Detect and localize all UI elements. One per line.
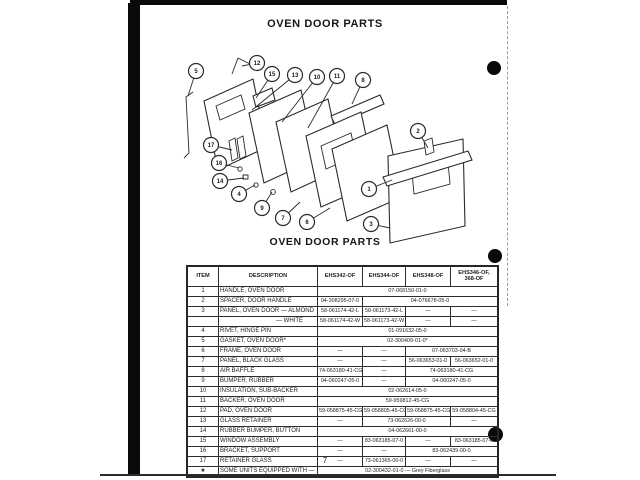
column-header: DESCRIPTION bbox=[219, 266, 318, 287]
part-number-cell: 73-062626-00-0 bbox=[363, 417, 451, 427]
part-number-cell: — bbox=[406, 437, 451, 447]
part-number-cell: 74-063180-41-CG bbox=[318, 367, 363, 377]
item-number-cell: 12 bbox=[187, 407, 219, 417]
callout-number: 15 bbox=[269, 72, 276, 78]
item-number-cell: 6 bbox=[187, 347, 219, 357]
table-row: 12PAD, OVEN DOOR59-058875-45-CG59-058805… bbox=[187, 407, 498, 417]
description-cell: PANEL, OVEN DOOR — ALMOND bbox=[219, 307, 318, 317]
part-number-cell: — bbox=[318, 437, 363, 447]
item-number-cell: 3 bbox=[187, 307, 219, 317]
part-number-cell: — bbox=[363, 347, 406, 357]
item-number-cell: 2 bbox=[187, 297, 219, 307]
part-number-cell: 58-061174-42-W bbox=[318, 317, 363, 327]
part-number-cell: — bbox=[318, 347, 363, 357]
item-number-cell: 10 bbox=[187, 387, 219, 397]
description-cell: RIVET, HINGE PIN bbox=[219, 327, 318, 337]
part-number-cell: — bbox=[318, 417, 363, 427]
callout-number: 16 bbox=[216, 161, 223, 167]
part-number-cell: 02-300432-01-0 — Grey Fiberglass bbox=[318, 467, 499, 478]
description-cell: HANDLE, OVEN DOOR bbox=[219, 287, 318, 297]
table-row: 15WINDOW ASSEMBLY—83-063185-07-0—83-0631… bbox=[187, 437, 498, 447]
item-number-cell: 14 bbox=[187, 427, 219, 437]
description-cell: FRAME, OVEN DOOR bbox=[219, 347, 318, 357]
part-number-cell: 83-063185-07-0 bbox=[451, 437, 499, 447]
table-row: 9BUMPER, RUBBER04-060247-05-0—04-060247-… bbox=[187, 377, 498, 387]
part-number-cell: 83-063185-07-0 bbox=[363, 437, 406, 447]
clip-shape bbox=[424, 138, 434, 155]
part-number-cell: 59-058875-45-CG bbox=[318, 407, 363, 417]
parts-table: ITEMDESCRIPTIONEHS342-OFEHS344-OFEHS348-… bbox=[186, 265, 499, 478]
table-row: 8AIR BAFFLE74-063180-41-CG—74-063180-41-… bbox=[187, 367, 498, 377]
item-number-cell: 7 bbox=[187, 357, 219, 367]
item-number-cell: ★ bbox=[187, 467, 219, 478]
description-cell: SOME UNITS EQUIPPED WITH — bbox=[219, 467, 318, 478]
description-cell: PAD, OVEN DOOR bbox=[219, 407, 318, 417]
callout-number: 14 bbox=[217, 179, 224, 185]
description-cell: BRACKET, SUPPORT bbox=[219, 447, 318, 457]
table-row: 4RIVET, HINGE PIN01-091632-05-0 bbox=[187, 327, 498, 337]
part-number-cell: 59-058804-45-CG bbox=[451, 407, 499, 417]
description-cell: RUBBER BUMPER, BUTTON bbox=[219, 427, 318, 437]
callout-number: 17 bbox=[208, 143, 215, 149]
part-number-cell: — bbox=[451, 417, 499, 427]
bracket-hook-shape bbox=[232, 58, 250, 74]
part-number-cell: 04-308295-07-0 bbox=[318, 297, 363, 307]
table-row: 13GLASS RETAINER—73-062626-00-0— bbox=[187, 417, 498, 427]
description-cell: BACKER, OVEN DOOR bbox=[219, 397, 318, 407]
description-cell: — WHITE bbox=[219, 317, 318, 327]
handle-shape bbox=[184, 92, 193, 158]
table-row: 14RUBBER BUMPER, BUTTON04-062661-00-0 bbox=[187, 427, 498, 437]
item-number-cell: 16 bbox=[187, 447, 219, 457]
part-number-cell: 59-058875-45-CG bbox=[406, 407, 451, 417]
table-row: 11BACKER, OVEN DOOR59-959812-45-CG bbox=[187, 397, 498, 407]
column-header: EHS342-OF bbox=[318, 266, 363, 287]
item-number-cell: 13 bbox=[187, 417, 219, 427]
column-header: EHS344-OF bbox=[363, 266, 406, 287]
parts-table-body: 1HANDLE, OVEN DOOR07-068150-01-02SPACER,… bbox=[187, 287, 498, 478]
item-number-cell bbox=[187, 317, 219, 327]
table-row: 1HANDLE, OVEN DOOR07-068150-01-0 bbox=[187, 287, 498, 297]
part-number-cell: — bbox=[318, 357, 363, 367]
scanned-page: { "page": { "title_top": "OVEN DOOR PART… bbox=[0, 0, 640, 480]
description-cell: INSULATION, SUB-BACKER bbox=[219, 387, 318, 397]
part-number-cell: 01-091632-05-0 bbox=[318, 327, 499, 337]
description-cell: GASKET, OVEN DOOR* bbox=[219, 337, 318, 347]
page-title: OVEN DOOR PARTS bbox=[140, 18, 510, 30]
table-row: ★SOME UNITS EQUIPPED WITH —02-300432-01-… bbox=[187, 467, 498, 478]
part-number-cell: 83-062439-00-0 bbox=[406, 447, 499, 457]
page-edge-left bbox=[128, 3, 140, 474]
part-number-cell: 56-063653-01-0 bbox=[406, 357, 451, 367]
description-cell: GLASS RETAINER bbox=[219, 417, 318, 427]
part-number-cell: 04-060247-05-0 bbox=[318, 377, 363, 387]
callout-number: 13 bbox=[292, 73, 299, 79]
table-row: 7PANEL, BLACK GLASS——56-063653-01-056-06… bbox=[187, 357, 498, 367]
part-number-cell: — bbox=[363, 367, 406, 377]
table-row: 6FRAME, OVEN DOOR——07-063703-04-B bbox=[187, 347, 498, 357]
table-row: 16BRACKET, SUPPORT——83-062439-00-0 bbox=[187, 447, 498, 457]
diagram-part-shapes bbox=[184, 58, 472, 243]
table-row: 3PANEL, OVEN DOOR — ALMOND58-061174-42-L… bbox=[187, 307, 498, 317]
part-number-cell: 04-062661-00-0 bbox=[318, 427, 499, 437]
part-number-cell: — bbox=[363, 357, 406, 367]
description-cell: BUMPER, RUBBER bbox=[219, 377, 318, 387]
item-number-cell: 9 bbox=[187, 377, 219, 387]
part-number-cell: 07-063703-04-B bbox=[406, 347, 499, 357]
callout-number: 12 bbox=[254, 61, 261, 67]
parts-table-header: ITEMDESCRIPTIONEHS342-OFEHS344-OFEHS348-… bbox=[187, 266, 498, 287]
part-number-cell: 04-060247-05-0 bbox=[406, 377, 499, 387]
description-cell: PANEL, BLACK GLASS bbox=[219, 357, 318, 367]
description-cell: WINDOW ASSEMBLY bbox=[219, 437, 318, 447]
part-number-cell: 07-068150-01-0 bbox=[318, 287, 499, 297]
column-header: ITEM bbox=[187, 266, 219, 287]
part-number-cell: 56-063652-01-0 bbox=[451, 357, 499, 367]
part-number-cell: 02-300409-01-0* bbox=[318, 337, 499, 347]
part-number-cell: 74-063180-41-CG bbox=[406, 367, 499, 377]
part-number-cell: — bbox=[406, 307, 451, 317]
part-number-cell: — bbox=[318, 447, 363, 457]
page-number: 7 bbox=[140, 456, 510, 465]
part-number-cell: — bbox=[451, 317, 499, 327]
item-number-cell: 5 bbox=[187, 337, 219, 347]
column-header: EHS346-OF, 368-OF bbox=[451, 266, 499, 287]
part-number-cell: 02-062614-05-0 bbox=[318, 387, 499, 397]
table-row: — WHITE58-061174-42-W58-061173-42-W—— bbox=[187, 317, 498, 327]
item-number-cell: 1 bbox=[187, 287, 219, 297]
description-cell: AIR BAFFLE bbox=[219, 367, 318, 377]
part-number-cell: — bbox=[363, 377, 406, 387]
callout-number: 10 bbox=[314, 75, 321, 81]
table-row: 10INSULATION, SUB-BACKER02-062614-05-0 bbox=[187, 387, 498, 397]
table-row: 5GASKET, OVEN DOOR*02-300409-01-0* bbox=[187, 337, 498, 347]
item-number-cell: 8 bbox=[187, 367, 219, 377]
part-number-cell: 58-061173-42-L bbox=[363, 307, 406, 317]
table-row: 2SPACER, DOOR HANDLE04-308295-07-004-076… bbox=[187, 297, 498, 307]
exploded-diagram: 5121513101181716144976123 bbox=[140, 45, 510, 250]
page-edge-top bbox=[130, 0, 507, 5]
part-number-cell: 58-061174-42-L bbox=[318, 307, 363, 317]
column-header: EHS348-OF bbox=[406, 266, 451, 287]
part-number-cell: — bbox=[451, 307, 499, 317]
part-number-cell: — bbox=[363, 447, 406, 457]
hole-punch-dot bbox=[488, 249, 502, 263]
part-number-cell: 59-959812-45-CG bbox=[318, 397, 499, 407]
item-number-cell: 15 bbox=[187, 437, 219, 447]
description-cell: SPACER, DOOR HANDLE bbox=[219, 297, 318, 307]
part-number-cell: 04-076678-05-0 bbox=[363, 297, 499, 307]
part-number-cell: 58-061173-42-W bbox=[363, 317, 406, 327]
callout-number: 11 bbox=[334, 74, 341, 80]
part-number-cell: 59-058805-45-CG bbox=[363, 407, 406, 417]
part-number-cell: — bbox=[406, 317, 451, 327]
item-number-cell: 11 bbox=[187, 397, 219, 407]
item-number-cell: 4 bbox=[187, 327, 219, 337]
